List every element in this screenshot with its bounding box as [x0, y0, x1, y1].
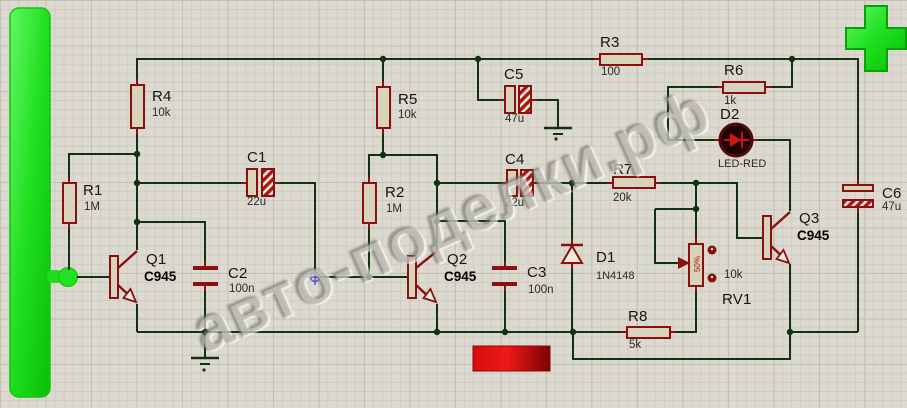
label-r2[interactable]: R2	[385, 184, 405, 201]
capacitor-c4[interactable]	[507, 170, 533, 196]
capacitor-c6[interactable]	[843, 185, 873, 207]
label-c6[interactable]: C6	[882, 185, 902, 202]
value-r8[interactable]: 5k	[629, 339, 641, 351]
capacitor-c5[interactable]	[505, 86, 531, 113]
label-c3[interactable]: C3	[527, 264, 547, 281]
value-rv1[interactable]: 10k	[724, 269, 743, 281]
value-r1[interactable]: 1M	[84, 201, 100, 213]
resistor-r2[interactable]	[363, 183, 376, 223]
resistor-r1[interactable]	[63, 183, 76, 223]
diode-d1[interactable]	[561, 245, 583, 263]
value-d1[interactable]: 1N4148	[596, 270, 635, 282]
capacitor-c1[interactable]	[247, 169, 274, 196]
value-r7[interactable]: 20k	[613, 192, 632, 204]
label-r8[interactable]: R8	[628, 308, 648, 325]
label-c5[interactable]: C5	[504, 66, 524, 83]
plus-terminal[interactable]	[846, 6, 906, 71]
transistor-q2[interactable]	[408, 251, 437, 302]
value-c1[interactable]: 22u	[247, 196, 266, 208]
resistor-r6[interactable]	[723, 82, 765, 93]
label-r5[interactable]: R5	[398, 91, 418, 108]
label-c1[interactable]: C1	[247, 149, 267, 166]
value-d2[interactable]: LED-RED	[718, 158, 766, 170]
value-c4[interactable]: 22u	[505, 197, 524, 209]
resistor-r8[interactable]	[627, 327, 670, 338]
label-q2[interactable]: Q2	[447, 251, 467, 268]
label-r4[interactable]: R4	[152, 88, 172, 105]
rv1-wiper-percent: 50%	[693, 256, 702, 272]
transistor-q1[interactable]	[110, 251, 137, 302]
origin-marker	[307, 269, 323, 285]
label-c4[interactable]: C4	[505, 151, 525, 168]
value-c3[interactable]: 100n	[528, 284, 554, 296]
label-d1[interactable]: D1	[596, 249, 616, 266]
label-rv1[interactable]: RV1	[722, 291, 752, 308]
resistor-r7[interactable]	[613, 177, 655, 188]
red-terminal-bar[interactable]	[473, 346, 550, 371]
value-q1[interactable]: C945	[144, 269, 176, 284]
label-r6[interactable]: R6	[724, 62, 744, 79]
value-r2[interactable]: 1M	[386, 203, 402, 215]
led-d2[interactable]	[720, 124, 752, 156]
wire-segments[interactable]	[69, 59, 858, 359]
value-q3[interactable]: C945	[797, 228, 829, 243]
capacitor-c3[interactable]	[492, 266, 517, 286]
proteus-schematic-canvas[interactable]: 50% R1	[0, 0, 907, 408]
label-r3[interactable]: R3	[600, 34, 620, 51]
capacitor-c2[interactable]	[193, 266, 218, 286]
terminal-node[interactable]	[59, 268, 78, 287]
value-c6[interactable]: 47u	[882, 201, 901, 213]
label-r7[interactable]: R7	[613, 161, 633, 178]
resistor-r5[interactable]	[377, 87, 390, 128]
potentiometer-rv1[interactable]: 50%	[678, 244, 717, 286]
value-r3[interactable]: 100	[601, 66, 620, 78]
resistor-r4[interactable]	[131, 85, 144, 128]
value-r4[interactable]: 10k	[152, 107, 171, 119]
transistor-q3[interactable]	[763, 212, 790, 263]
label-r1[interactable]: R1	[83, 182, 103, 199]
ground-symbol[interactable]	[544, 128, 572, 141]
label-q3[interactable]: Q3	[799, 210, 819, 227]
label-c2[interactable]: C2	[228, 265, 248, 282]
value-q2[interactable]: C945	[444, 269, 476, 284]
value-c5[interactable]: 47u	[505, 113, 524, 125]
label-q1[interactable]: Q1	[146, 251, 166, 268]
schematic: 50%	[0, 0, 907, 408]
ground-symbol[interactable]	[191, 358, 219, 372]
label-d2[interactable]: D2	[720, 106, 740, 123]
resistor-r3[interactable]	[600, 54, 642, 65]
value-r5[interactable]: 10k	[398, 109, 417, 121]
value-c2[interactable]: 100n	[229, 283, 255, 295]
